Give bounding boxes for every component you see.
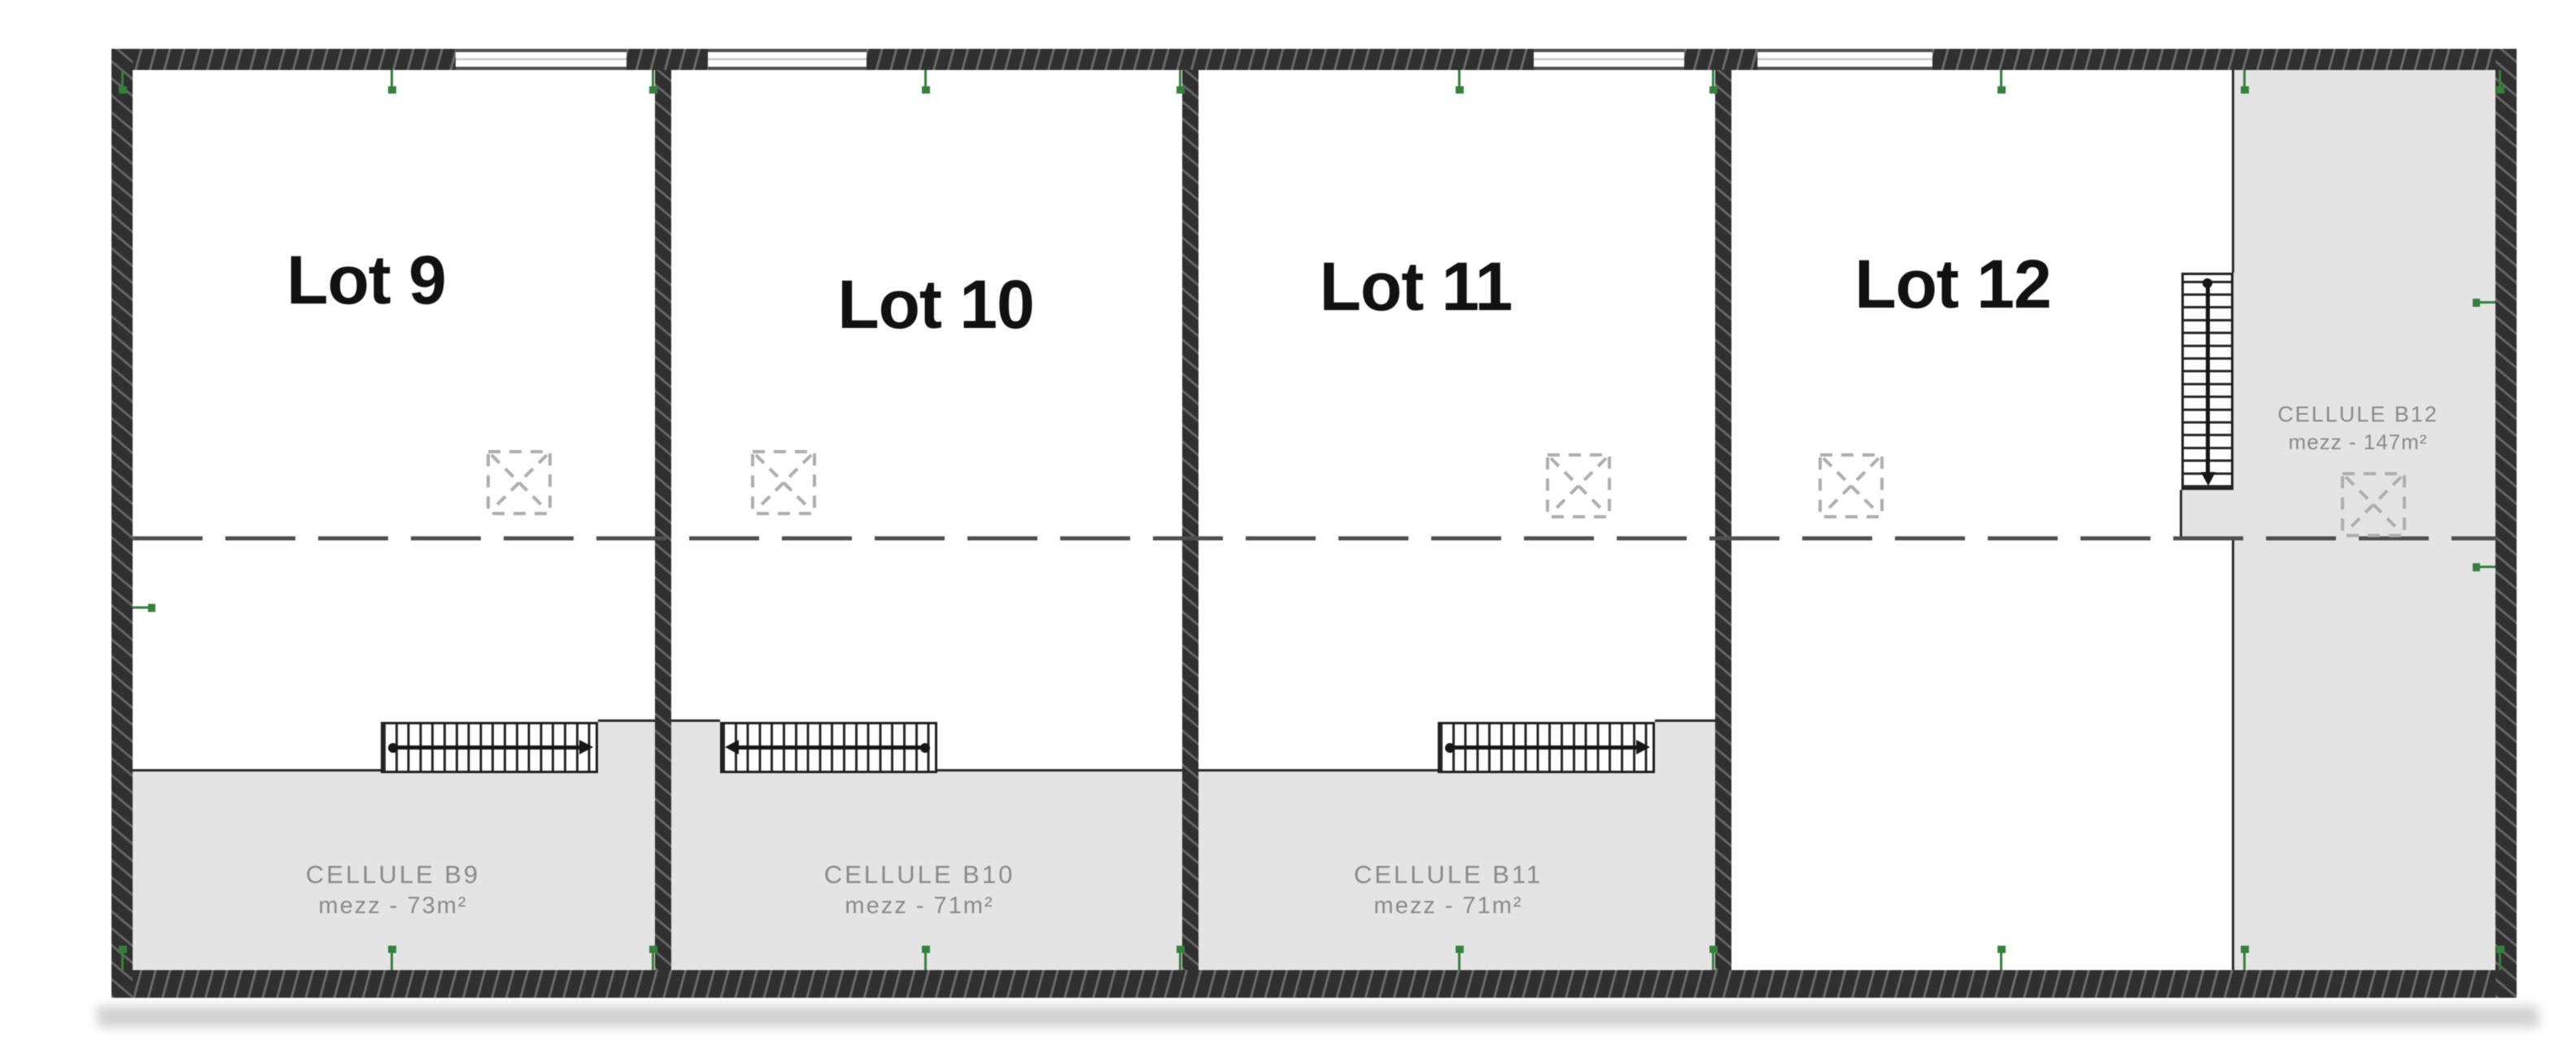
cell-name: CELLULE B9 <box>230 859 556 891</box>
wall-segment-cladding <box>1757 49 1932 70</box>
survey-marker-icon <box>391 70 393 88</box>
cell-label-b10: CELLULE B10 mezz - 71m² <box>757 859 1082 921</box>
stairs-walkline <box>393 745 586 750</box>
outer-wall-top <box>111 49 2517 70</box>
stairs-b12 <box>2181 273 2233 490</box>
mezzanine-landing-b12 <box>2181 490 2233 538</box>
mezzanine-edge-b9 <box>133 769 381 772</box>
mezzanine-landing-b11 <box>1655 722 1715 772</box>
wall-segment-cladding <box>456 49 627 70</box>
cell-name: CELLULE B11 <box>1286 859 1611 891</box>
survey-marker-icon <box>133 606 149 609</box>
survey-marker-icon <box>2479 301 2495 304</box>
survey-marker-icon <box>652 70 654 88</box>
cell-area: mezz - 71m² <box>1286 891 1611 921</box>
cell-label-b12: CELLULE B12 mezz - 147m² <box>2236 400 2480 456</box>
mezzanine-edge-b10 <box>937 769 1182 772</box>
survey-marker-icon <box>1458 952 1460 970</box>
stairs-up-arrow-icon <box>2201 472 2216 486</box>
outer-wall-bottom <box>111 970 2517 998</box>
cell-name: CELLULE B10 <box>757 859 1082 891</box>
landing-edge-b9 <box>598 719 655 722</box>
survey-marker-icon <box>1458 70 1460 88</box>
cell-label-b11: CELLULE B11 mezz - 71m² <box>1286 859 1611 921</box>
wall-segment-concrete <box>1684 49 1757 70</box>
survey-marker-icon <box>652 952 654 970</box>
survey-marker-icon <box>2479 566 2495 568</box>
stairs-walkline <box>732 745 925 750</box>
survey-marker-icon <box>1179 70 1181 88</box>
wall-segment-concrete <box>867 49 1534 70</box>
stairs-walkline <box>1450 745 1643 750</box>
stairs-up-arrow-icon <box>579 740 593 754</box>
survey-marker-icon <box>1179 952 1181 970</box>
column-symbol-lot9 <box>485 448 553 517</box>
survey-marker-icon <box>2499 70 2501 88</box>
lot-label-12: Lot 12 <box>1790 245 2115 324</box>
survey-marker-icon <box>924 70 927 88</box>
mezzanine-edge-b12-upper <box>2232 70 2234 273</box>
floor-plan: Lot 9 Lot 10 Lot 11 Lot 12 CELLULE B9 me… <box>0 0 2576 1058</box>
wall-segment-cladding <box>708 49 867 70</box>
survey-marker-icon <box>1712 952 1714 970</box>
survey-marker-icon <box>121 70 124 88</box>
center-axis-dashed-line <box>133 536 2495 540</box>
survey-marker-icon <box>121 952 124 970</box>
survey-marker-icon <box>2243 952 2246 970</box>
lot-label-11: Lot 11 <box>1253 247 1578 326</box>
stairs-b9 <box>381 722 598 773</box>
wall-segment-cladding <box>1534 49 1684 70</box>
wall-segment-concrete <box>111 49 456 70</box>
mezzanine-landing-b10 <box>671 722 720 772</box>
landing-edge-b10 <box>671 719 720 722</box>
survey-marker-icon <box>2000 952 2002 970</box>
landing-edge-b11 <box>1655 719 1715 722</box>
ground-shadow <box>98 1006 2539 1027</box>
cell-area: mezz - 73m² <box>230 891 556 921</box>
mezzanine-edge-b11 <box>1198 769 1438 772</box>
column-symbol-b12 <box>2339 470 2408 539</box>
column-symbol-lot11 <box>1544 452 1613 520</box>
wall-segment-concrete <box>1932 49 2517 70</box>
stairs-walkline <box>2206 283 2210 479</box>
stairs-up-arrow-icon <box>1636 740 1650 754</box>
cell-area: mezz - 71m² <box>757 891 1082 921</box>
survey-marker-icon <box>2499 952 2501 970</box>
stairs-b11 <box>1438 722 1655 773</box>
lot-label-10: Lot 10 <box>773 265 1098 344</box>
column-symbol-lot12 <box>1817 452 1885 520</box>
lot-label-9: Lot 9 <box>203 241 529 320</box>
survey-marker-icon <box>2243 70 2246 88</box>
survey-marker-icon <box>1712 70 1714 88</box>
stairs-up-arrow-icon <box>725 740 739 754</box>
mezzanine-edge-b12-lower <box>2232 538 2234 970</box>
cell-area: mezz - 147m² <box>2236 429 2480 456</box>
wall-segment-concrete <box>627 49 708 70</box>
survey-marker-icon <box>924 952 927 970</box>
cell-label-b9: CELLULE B9 mezz - 73m² <box>230 859 556 921</box>
outer-wall-left <box>111 49 133 998</box>
landing-edge-b12-left <box>2180 490 2182 539</box>
survey-marker-icon <box>391 952 393 970</box>
divider-wall-lot9-lot10 <box>655 70 671 970</box>
divider-wall-lot11-lot12 <box>1715 70 1731 970</box>
outer-wall-right <box>2495 49 2517 998</box>
column-symbol-lot10 <box>749 448 818 517</box>
cell-name: CELLULE B12 <box>2236 400 2480 429</box>
mezzanine-landing-b9 <box>598 722 655 772</box>
divider-wall-lot10-lot11 <box>1182 70 1198 970</box>
survey-marker-icon <box>2000 70 2002 88</box>
stairs-b10 <box>720 722 937 773</box>
